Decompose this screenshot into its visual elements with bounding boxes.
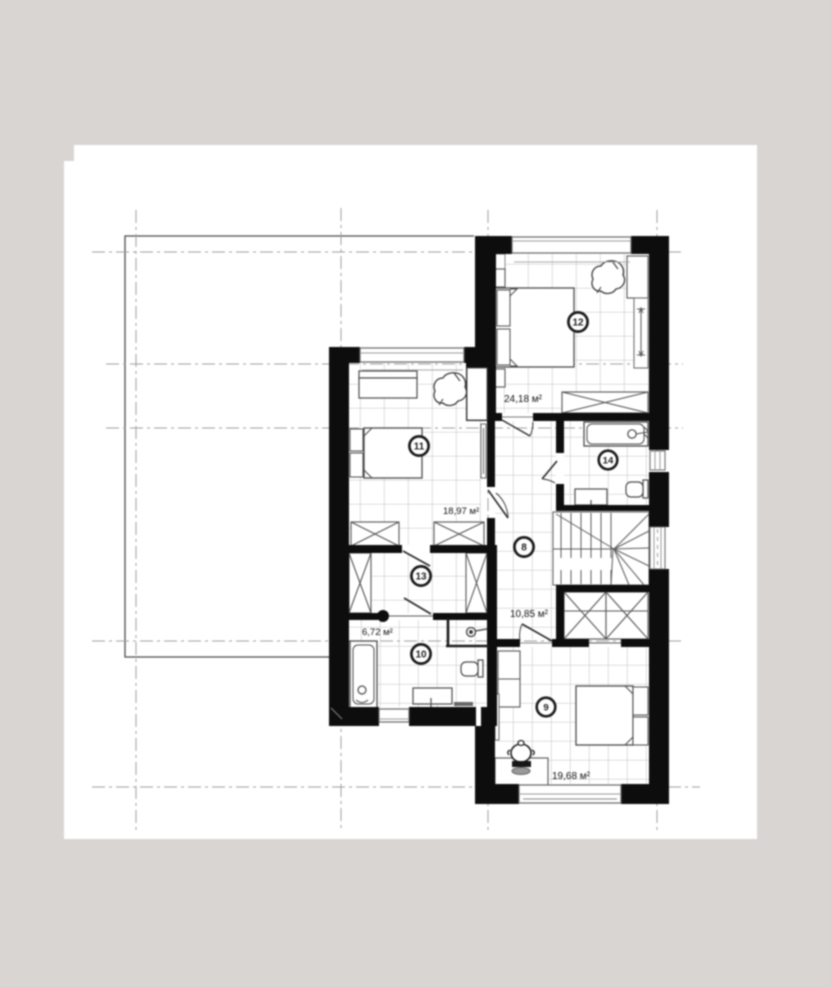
svg-text:10: 10 — [415, 650, 427, 661]
svg-text:19,68 м²: 19,68 м² — [552, 771, 591, 782]
svg-text:14: 14 — [603, 456, 614, 467]
svg-text:18,97 м²: 18,97 м² — [443, 506, 479, 517]
svg-text:13: 13 — [415, 572, 427, 583]
svg-text:9: 9 — [543, 703, 548, 714]
svg-text:12: 12 — [572, 318, 584, 329]
svg-text:11: 11 — [414, 442, 425, 453]
svg-text:24,18 м²: 24,18 м² — [504, 394, 543, 405]
svg-text:6,72 м²: 6,72 м² — [362, 627, 393, 638]
svg-text:10,85 м²: 10,85 м² — [510, 609, 549, 620]
svg-text:8: 8 — [521, 543, 527, 554]
